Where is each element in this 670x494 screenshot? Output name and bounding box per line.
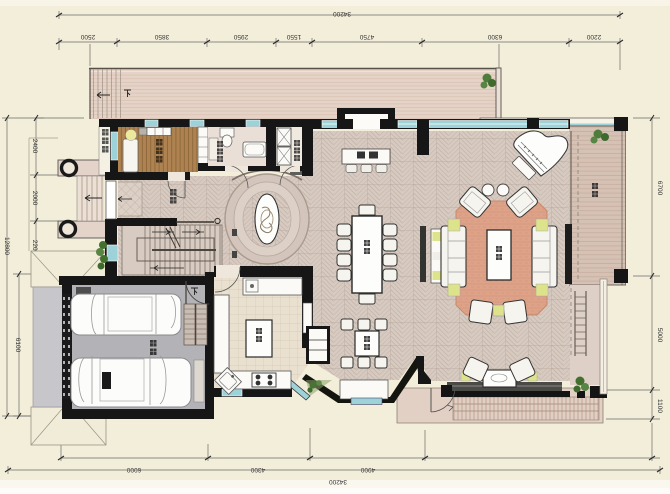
svg-text:2200: 2200: [586, 33, 601, 40]
svg-text:34200: 34200: [329, 478, 347, 485]
svg-text:4300: 4300: [250, 466, 265, 473]
svg-text:1550: 1550: [286, 33, 301, 40]
svg-text:6300: 6300: [487, 33, 502, 40]
svg-text:6000: 6000: [126, 466, 141, 473]
svg-text:12800: 12800: [3, 237, 10, 255]
svg-text:1100: 1100: [656, 399, 663, 413]
svg-text:34200: 34200: [333, 10, 351, 17]
svg-text:4900: 4900: [360, 466, 375, 473]
svg-text:5000: 5000: [656, 328, 663, 343]
svg-text:2000: 2000: [31, 191, 38, 206]
svg-text:2400: 2400: [31, 139, 38, 154]
svg-text:2950: 2950: [233, 33, 248, 40]
svg-text:2500: 2500: [80, 33, 95, 40]
svg-text:6700: 6700: [656, 181, 663, 196]
svg-text:4750: 4750: [359, 33, 374, 40]
svg-text:6100: 6100: [14, 338, 21, 353]
svg-text:3850: 3850: [154, 33, 169, 40]
